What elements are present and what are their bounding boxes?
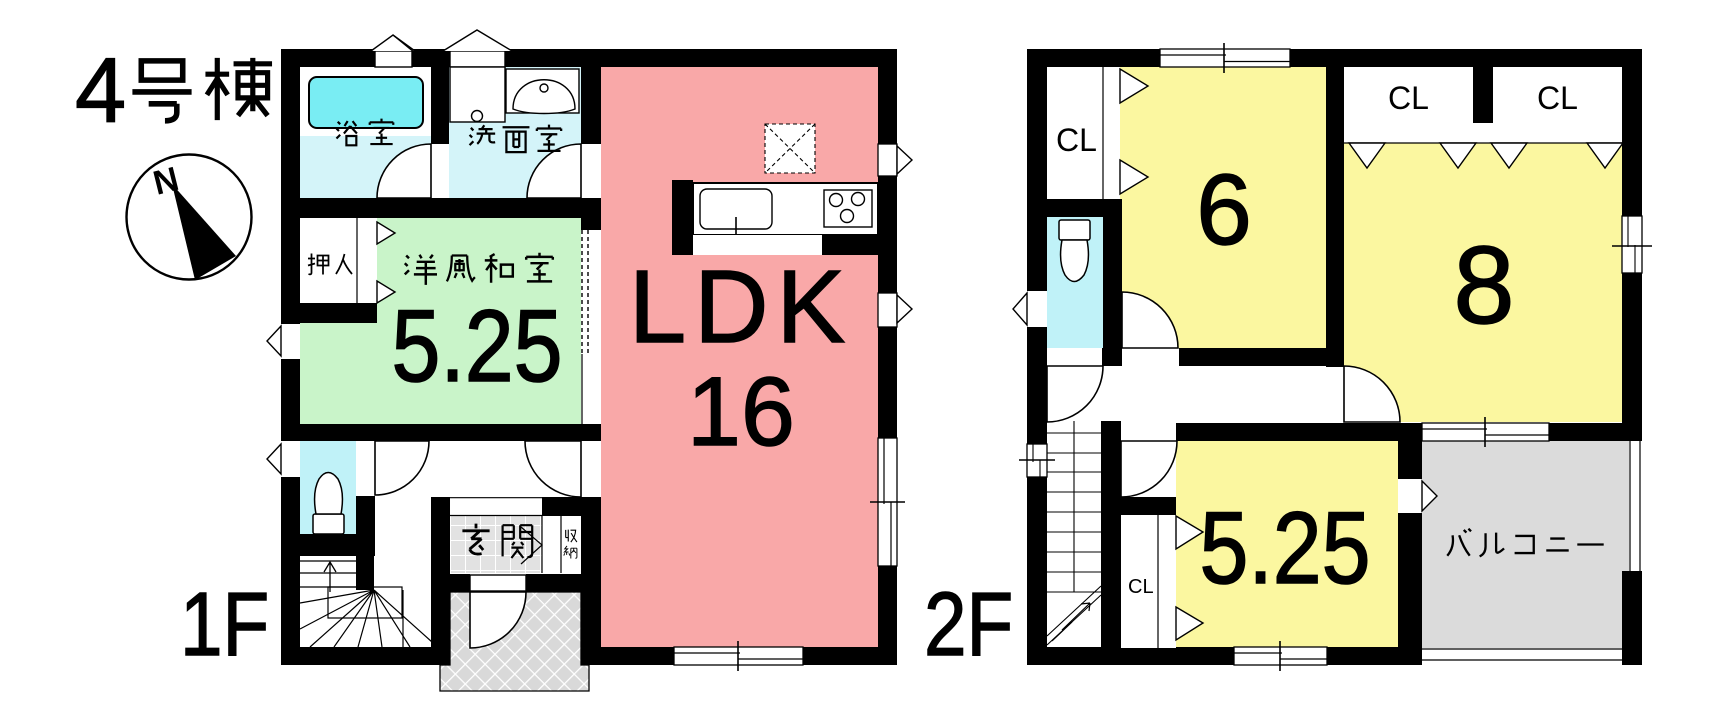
svg-text:1F: 1F <box>180 573 269 674</box>
svg-text:8: 8 <box>1453 224 1514 347</box>
svg-text:4: 4 <box>75 40 126 142</box>
svg-text:LDK: LDK <box>629 249 853 364</box>
svg-text:CL: CL <box>1537 80 1578 116</box>
svg-text:2F: 2F <box>924 573 1013 674</box>
svg-text:16: 16 <box>687 357 795 466</box>
svg-text:5.25: 5.25 <box>1199 492 1370 606</box>
svg-text:5.25: 5.25 <box>391 290 562 404</box>
svg-text:CL: CL <box>1128 576 1154 598</box>
svg-text:CL: CL <box>1388 80 1429 116</box>
svg-text:CL: CL <box>1056 122 1097 158</box>
svg-text:6: 6 <box>1196 154 1252 266</box>
